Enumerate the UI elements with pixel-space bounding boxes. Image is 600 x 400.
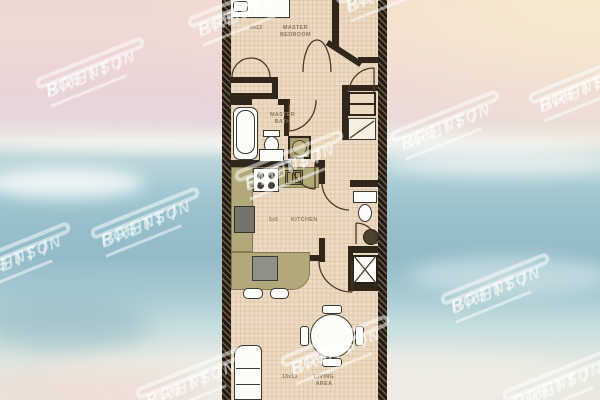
room-name: MASTER BATH <box>270 112 295 126</box>
room-name: MASTER BEDROOM <box>280 25 311 39</box>
room-dims: 5x5 <box>269 217 278 223</box>
room-name: KITCHEN <box>291 217 318 224</box>
listing-photo: MASTER BEDROOM 9x12 MASTER BATH KITCHEN … <box>0 0 600 400</box>
